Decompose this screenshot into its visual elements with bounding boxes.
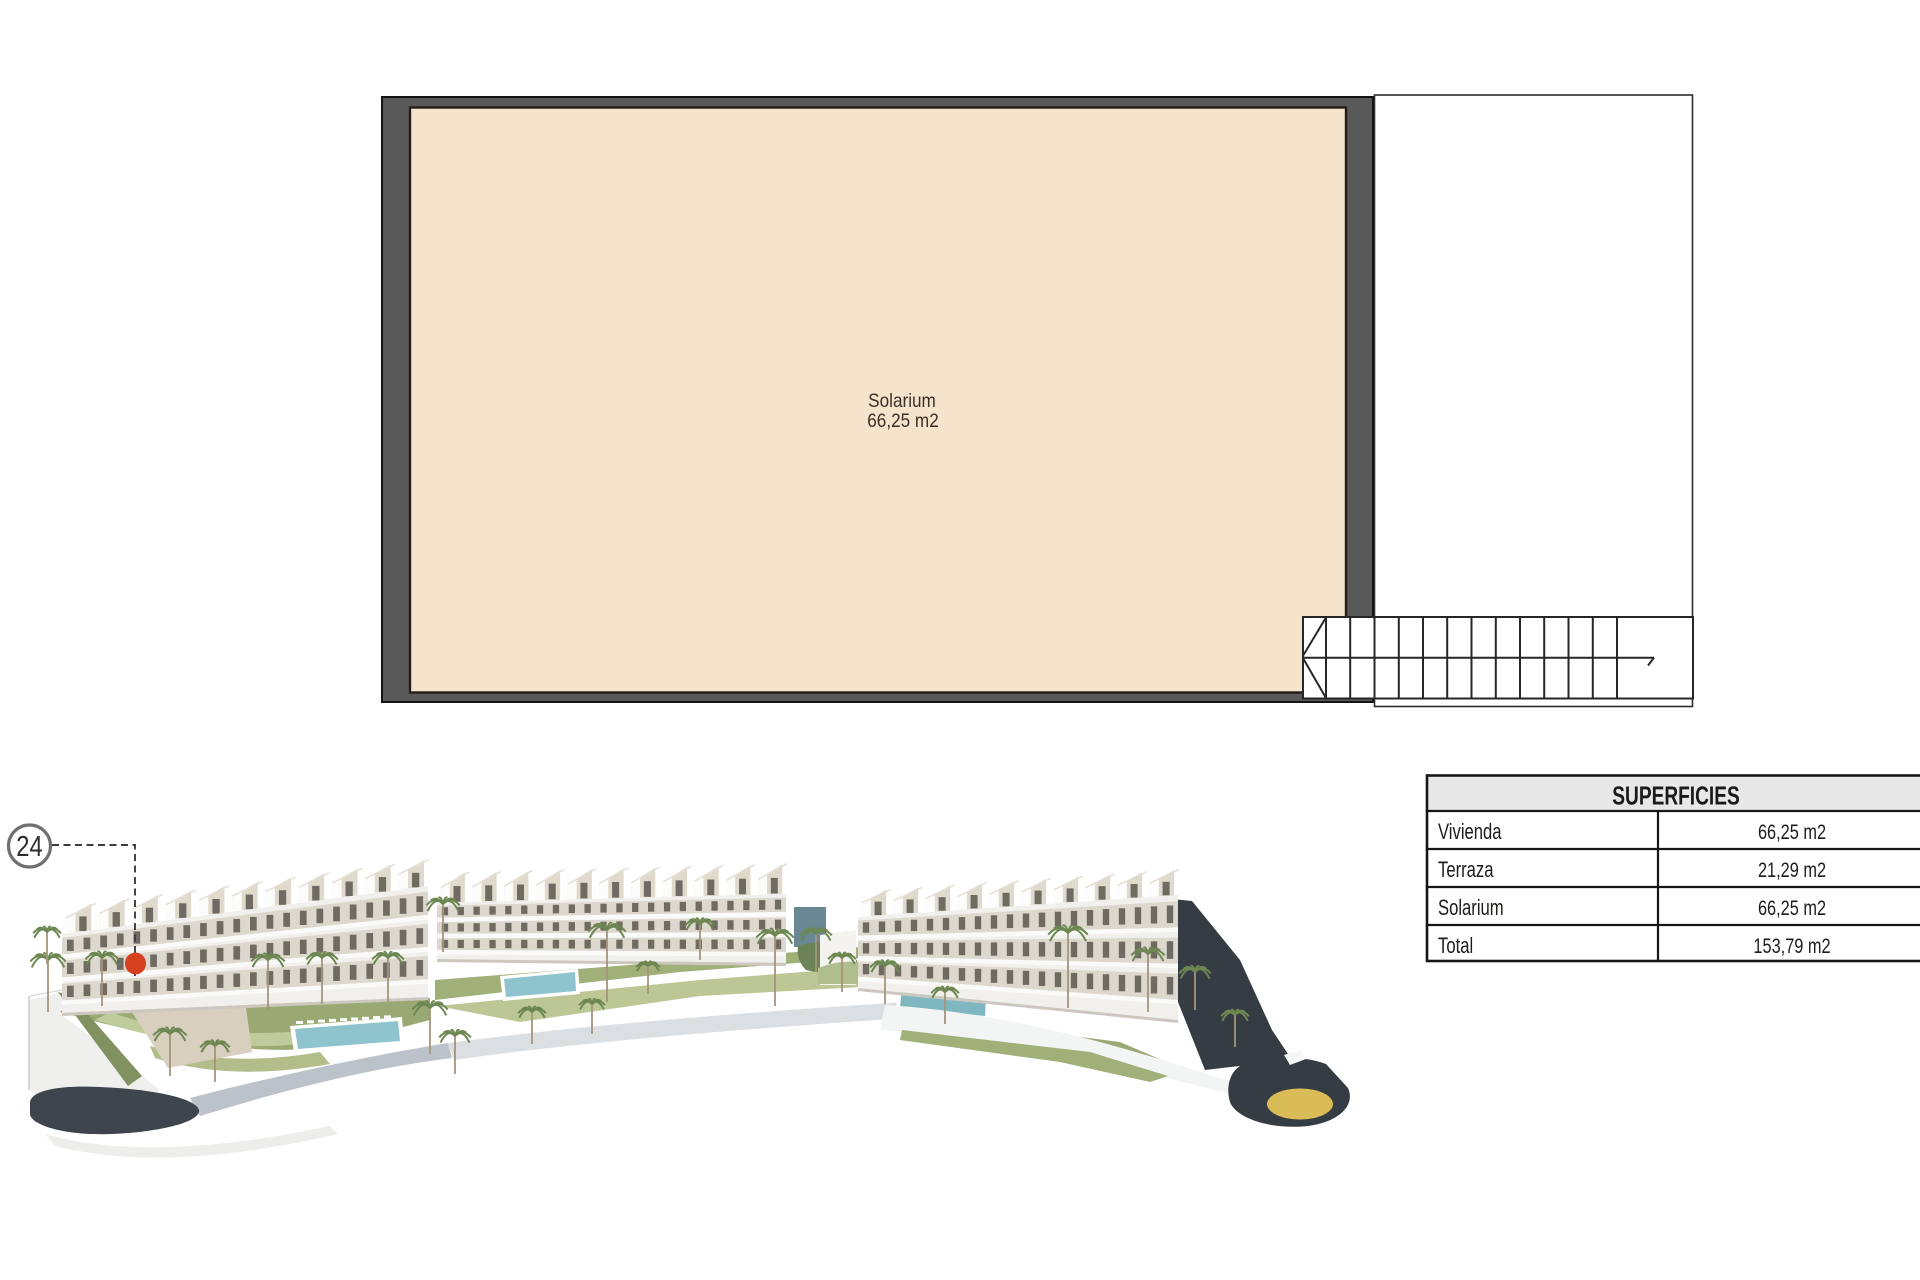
svg-text:Terraza: Terraza	[1438, 858, 1493, 883]
svg-text:SUPERFICIES: SUPERFICIES	[1612, 782, 1739, 810]
svg-text:66,25 m2: 66,25 m2	[1758, 897, 1826, 921]
svg-text:Solarium: Solarium	[868, 389, 936, 411]
svg-text:21,29 m2: 21,29 m2	[1758, 859, 1826, 883]
svg-text:Total: Total	[1438, 934, 1473, 959]
svg-text:24: 24	[16, 830, 42, 863]
svg-text:66,25 m2: 66,25 m2	[867, 409, 939, 431]
svg-text:153,79 m2: 153,79 m2	[1753, 935, 1830, 959]
svg-text:Vivienda: Vivienda	[1438, 820, 1502, 845]
svg-text:Solarium: Solarium	[1438, 896, 1504, 921]
svg-text:66,25 m2: 66,25 m2	[1758, 821, 1826, 845]
